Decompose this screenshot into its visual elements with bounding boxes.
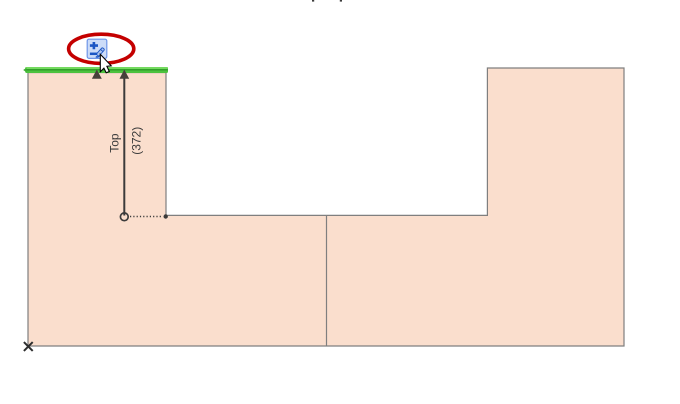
svg-text:Top: Top bbox=[107, 133, 121, 153]
svg-text:(372): (372) bbox=[129, 127, 143, 155]
